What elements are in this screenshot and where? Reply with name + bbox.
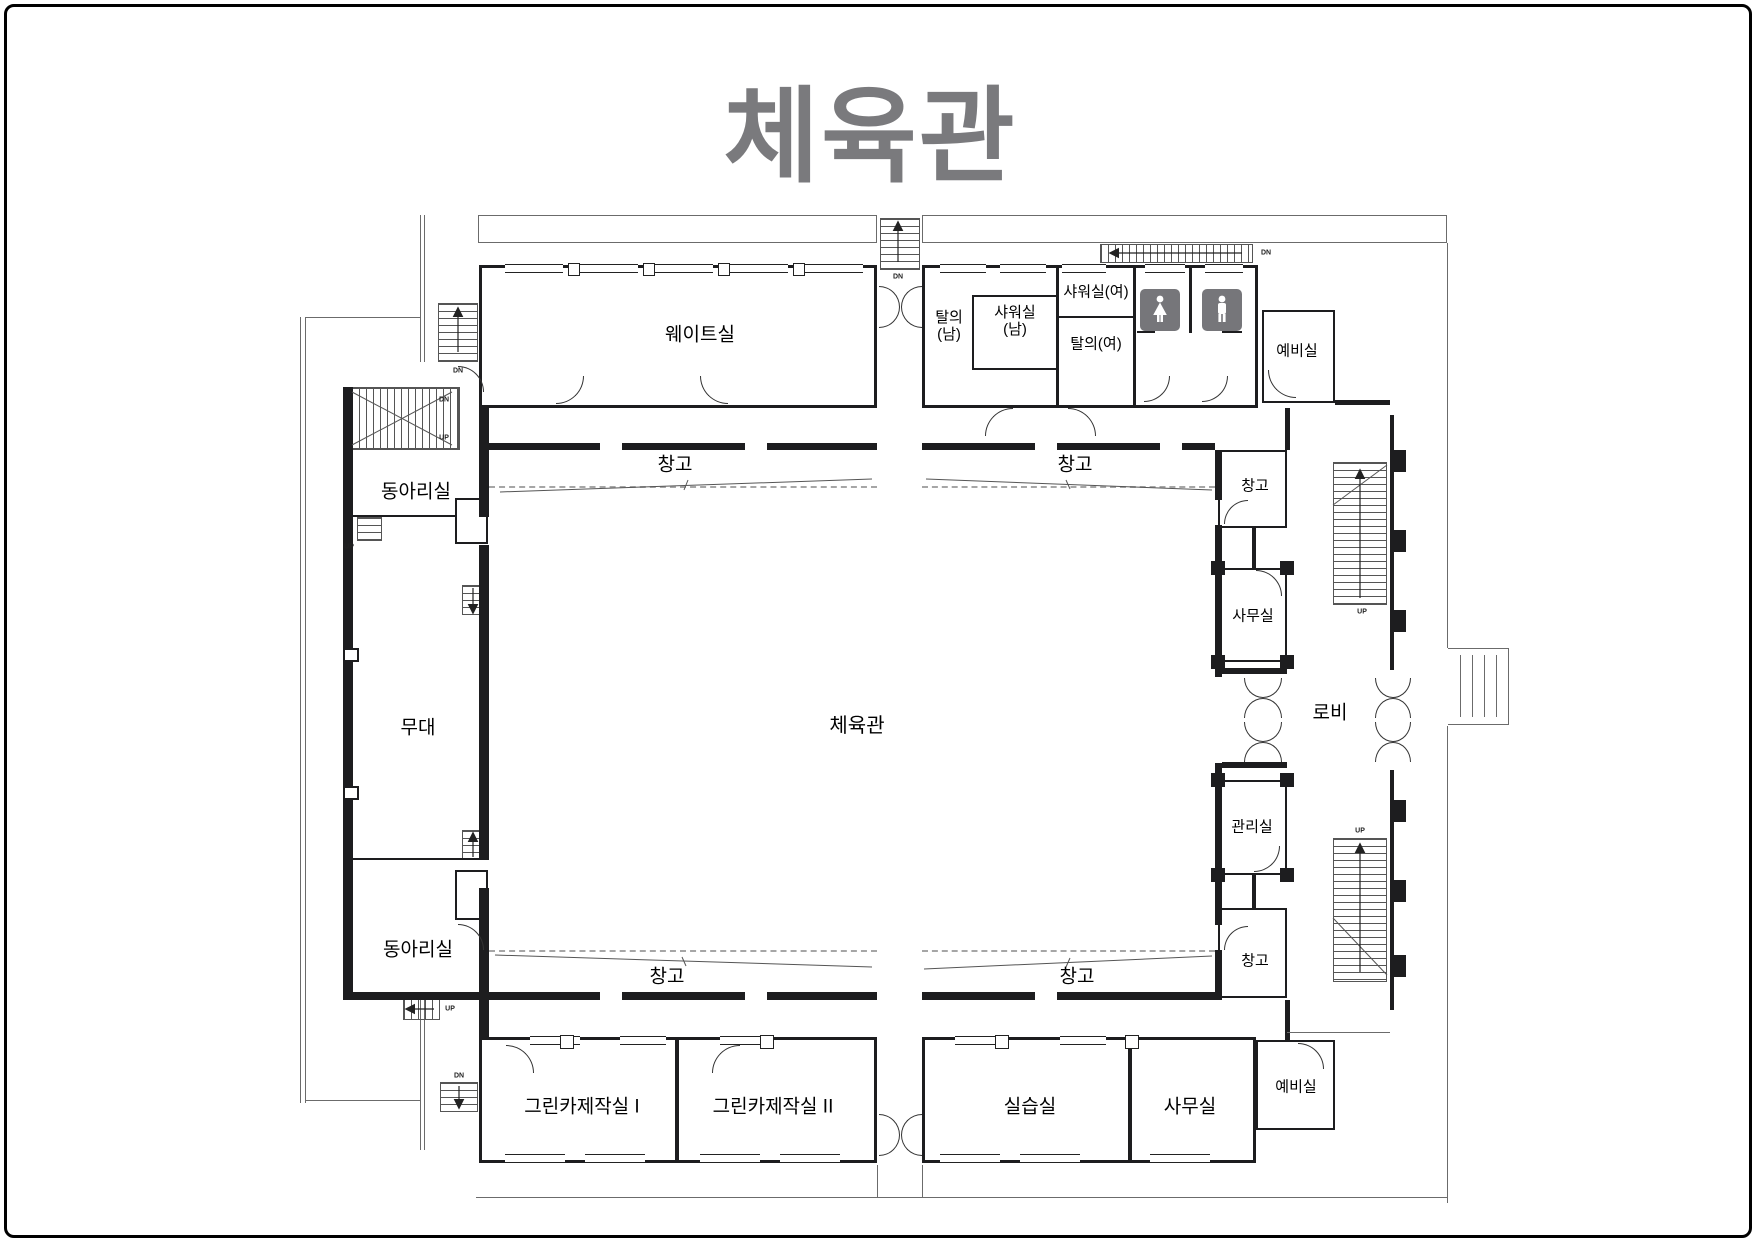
label-changing-men: 탈의 (남)	[935, 310, 963, 344]
wall-pier	[1394, 450, 1406, 472]
wall	[1058, 316, 1135, 318]
window	[505, 264, 563, 273]
wall	[1128, 1037, 1132, 1163]
stair-lobby-south	[1333, 838, 1387, 982]
label-storage-top-left: 창고	[658, 454, 693, 475]
exterior-line	[300, 317, 301, 1103]
window	[1020, 1154, 1080, 1163]
door-opening	[1035, 443, 1057, 450]
label-stage: 무대	[401, 717, 436, 738]
door-opening	[600, 443, 622, 450]
wall	[1285, 408, 1290, 450]
wall	[1133, 265, 1136, 408]
porch-line	[1508, 648, 1509, 725]
mullion	[793, 263, 805, 276]
mullion	[568, 263, 580, 276]
mullion	[643, 263, 655, 276]
label-club-bottom: 동아리실	[383, 939, 453, 960]
label-club-top: 동아리실	[381, 481, 451, 502]
stair-bottom-left	[403, 998, 440, 1020]
stair-dn-label: DN	[454, 1073, 464, 1080]
wall	[479, 408, 489, 517]
porch-step	[1484, 655, 1485, 717]
wall	[1252, 528, 1256, 568]
wall-pier	[1394, 530, 1406, 552]
stair-lobby-north	[1333, 462, 1387, 605]
bleacher-dash-line	[922, 950, 1215, 952]
wall	[352, 858, 479, 860]
exterior-line	[305, 317, 420, 318]
wall	[479, 545, 489, 860]
exterior-line	[424, 215, 425, 362]
window	[585, 1154, 645, 1163]
bleacher-dash-line	[922, 486, 1215, 488]
wall	[1222, 331, 1242, 333]
window	[730, 264, 788, 273]
wall	[343, 387, 353, 1000]
wall	[1335, 400, 1390, 405]
porch-line	[1448, 648, 1508, 649]
porch-line	[922, 1165, 923, 1198]
label-storage-bottom-right: 창고	[1060, 966, 1095, 987]
wall	[675, 1037, 679, 1163]
porch-step	[1472, 655, 1473, 717]
window	[1062, 264, 1106, 273]
window	[780, 1154, 840, 1163]
label-practice: 실습실	[1004, 1096, 1056, 1117]
label-office-bottom: 사무실	[1164, 1096, 1216, 1117]
mullion	[718, 263, 730, 276]
canopy-top-left	[478, 215, 877, 243]
stair-stage-upper	[357, 517, 382, 541]
stair-dn-label: DN	[893, 274, 903, 281]
stair-up-label: UP	[344, 544, 354, 551]
label-office-east: 사무실	[1232, 609, 1273, 626]
wall-pier	[1394, 880, 1406, 902]
stair-dn-label: DN	[1261, 250, 1271, 257]
window	[1000, 264, 1046, 273]
wall	[922, 992, 1215, 1000]
stair-bottom-left-outer	[440, 1082, 478, 1112]
canopy-top-right	[922, 215, 1447, 243]
window	[700, 1154, 760, 1163]
window	[940, 264, 986, 273]
exterior-line	[420, 1000, 421, 1150]
window	[1060, 1036, 1106, 1045]
wall-pier	[1394, 955, 1406, 977]
label-changing-women: 탈의(여)	[1070, 337, 1121, 354]
stair-top-left	[438, 303, 478, 362]
porch-step	[1496, 655, 1497, 717]
floor-plan-page: 체육관	[0, 0, 1756, 1242]
wall	[1252, 875, 1256, 908]
door-opening	[1160, 443, 1182, 450]
wall-pier	[1394, 800, 1406, 822]
wall	[1285, 1000, 1290, 1040]
men-restroom-icon	[1202, 289, 1242, 331]
pilaster	[343, 648, 359, 662]
exterior-line	[476, 1197, 1448, 1198]
label-storage-ne: 창고	[1241, 479, 1269, 496]
stair-up-label: UP	[439, 435, 449, 442]
window	[1150, 1154, 1210, 1163]
stair-up-label: UP	[1357, 609, 1367, 616]
window	[1145, 264, 1185, 273]
column	[1211, 655, 1225, 669]
column	[1211, 868, 1225, 882]
wall	[1222, 668, 1287, 674]
window	[805, 264, 863, 273]
exterior-line	[420, 215, 421, 362]
wall	[1189, 265, 1192, 333]
stair-top-center	[880, 218, 920, 270]
stair-dn-label: DN	[453, 368, 463, 375]
window	[940, 1154, 1000, 1163]
exterior-line	[305, 317, 306, 1103]
label-weight-room: 웨이트실	[665, 324, 735, 345]
door-opening	[745, 443, 767, 450]
door-opening	[1035, 992, 1057, 1000]
porch-line	[1448, 724, 1508, 725]
women-restroom-icon	[1140, 289, 1180, 331]
stair-up-label: UP	[445, 1006, 455, 1013]
mullion	[1125, 1035, 1139, 1049]
label-gym: 체육관	[829, 715, 884, 737]
bleacher-dash-line	[489, 486, 877, 488]
mullion	[760, 1035, 774, 1049]
label-reserve-bottom: 예비실	[1275, 1080, 1316, 1097]
window	[505, 1154, 565, 1163]
bleacher-dash-line	[489, 950, 877, 952]
exterior-line	[305, 1100, 420, 1101]
column	[1280, 561, 1294, 575]
exterior-line	[1447, 726, 1448, 1203]
label-shower-women: 샤워실(여)	[1063, 285, 1128, 302]
window	[580, 264, 638, 273]
exterior-line	[1447, 243, 1448, 648]
pilaster	[343, 786, 359, 800]
column	[1280, 868, 1294, 882]
wall	[1056, 265, 1059, 408]
stair-up-label: UP	[1355, 828, 1365, 835]
label-shower-men: 샤워실 (남)	[994, 305, 1035, 339]
label-greencar2: 그린카제작실 II	[713, 1096, 834, 1117]
window	[1205, 264, 1243, 273]
window	[655, 264, 713, 273]
wall	[479, 888, 489, 1038]
wall	[489, 443, 877, 450]
label-greencar1: 그린카제작실 I	[524, 1096, 639, 1117]
label-lobby: 로비	[1313, 702, 1348, 723]
plan-title: 체육관	[723, 52, 1016, 203]
porch-step	[1460, 655, 1461, 717]
window	[620, 1036, 666, 1045]
column	[1280, 773, 1294, 787]
wall	[343, 992, 488, 1000]
door-opening	[745, 992, 767, 1000]
label-reserve-top: 예비실	[1276, 344, 1317, 361]
wall	[489, 992, 877, 1000]
column	[1211, 773, 1225, 787]
stair-top-right	[1100, 244, 1253, 263]
label-storage-bottom-left: 창고	[650, 966, 685, 987]
label-admin: 관리실	[1231, 820, 1272, 837]
label-storage-se: 창고	[1241, 954, 1269, 971]
porch-line	[877, 1165, 878, 1198]
column	[1280, 655, 1294, 669]
stair-dn-label: DN	[439, 397, 449, 404]
mullion	[995, 1035, 1009, 1049]
wall	[1222, 762, 1287, 768]
mullion	[560, 1035, 574, 1049]
wall-pier	[1394, 610, 1406, 632]
lobby-edge	[1287, 1032, 1390, 1033]
label-storage-top-right: 창고	[1058, 454, 1093, 475]
exterior-line	[424, 1000, 425, 1150]
door-opening	[600, 992, 622, 1000]
wall	[1137, 331, 1155, 333]
column	[1211, 561, 1225, 575]
